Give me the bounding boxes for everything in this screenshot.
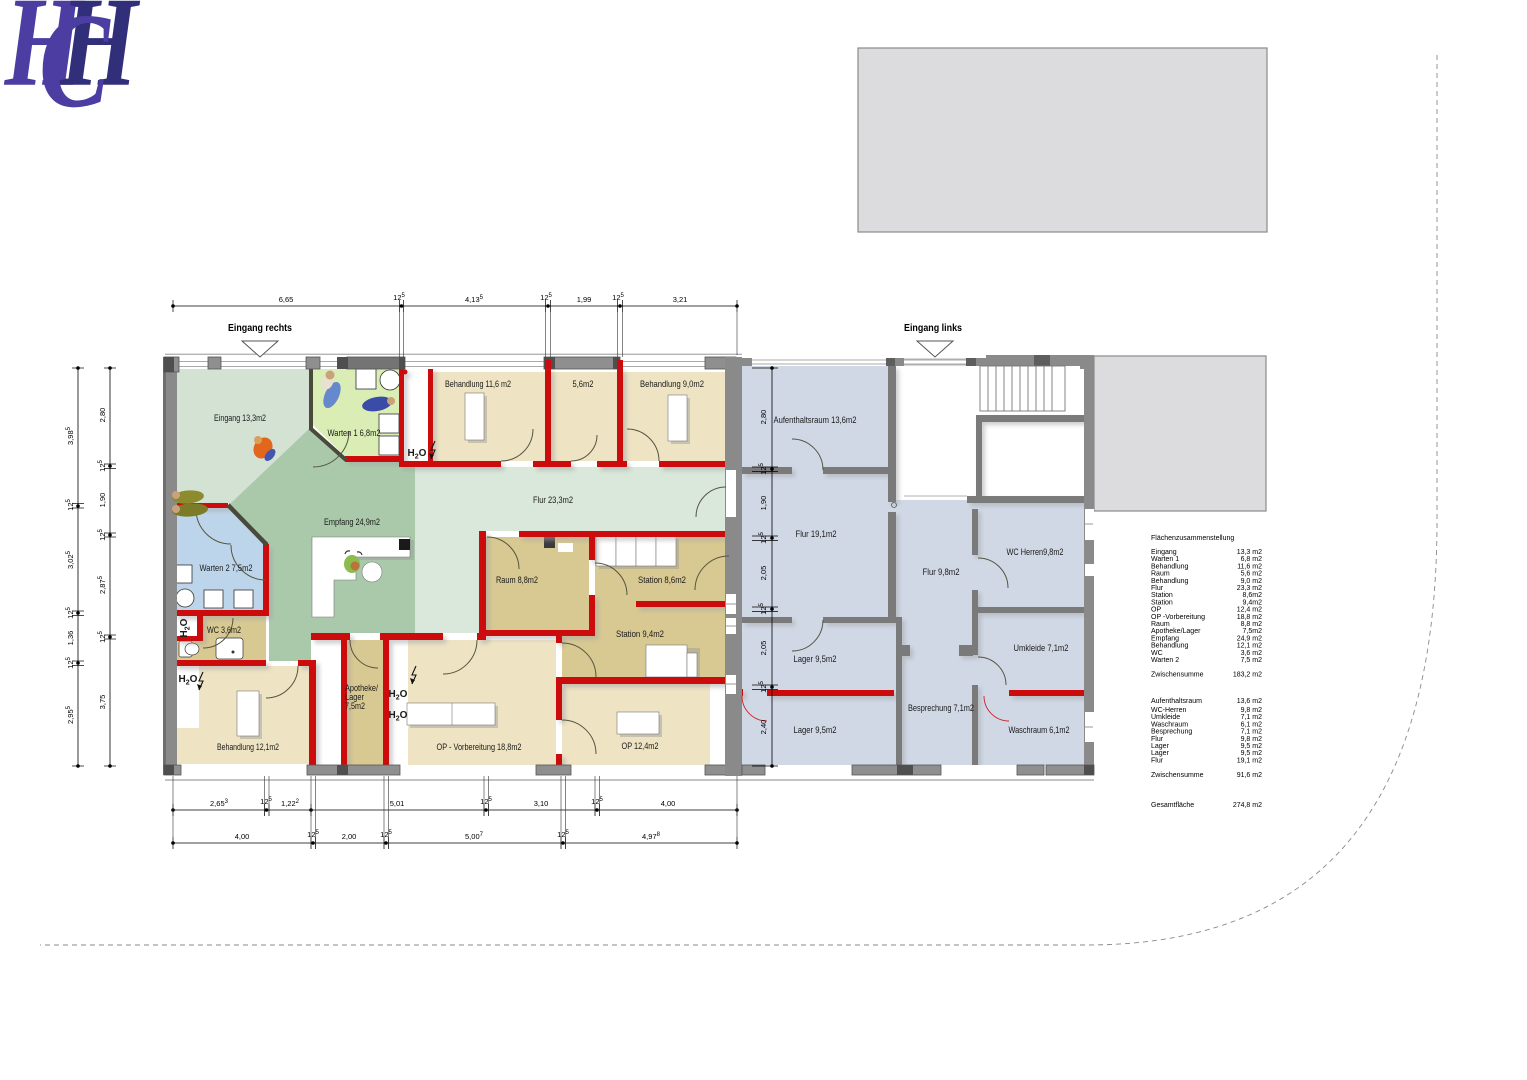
svg-text:8,6m2: 8,6m2 bbox=[1243, 592, 1263, 599]
svg-text:Behandlung 12,1m2: Behandlung 12,1m2 bbox=[217, 742, 279, 752]
svg-text:5,01: 5,01 bbox=[390, 799, 405, 808]
svg-text:91,6 m2: 91,6 m2 bbox=[1237, 772, 1262, 779]
svg-text:Apotheke/Lager: Apotheke/Lager bbox=[1151, 628, 1201, 635]
svg-text:7,1 m2: 7,1 m2 bbox=[1241, 729, 1263, 736]
svg-text:5,6 m2: 5,6 m2 bbox=[1241, 571, 1263, 578]
svg-text:7,5m2: 7,5m2 bbox=[345, 701, 365, 711]
svg-text:6,8 m2: 6,8 m2 bbox=[1241, 556, 1263, 563]
svg-text:Flächenzusammenstellung: Flächenzusammenstellung bbox=[1151, 535, 1234, 542]
svg-text:Flur 23,3m2: Flur 23,3m2 bbox=[533, 495, 573, 505]
svg-text:5,6m2: 5,6m2 bbox=[573, 379, 594, 389]
svg-text:7,1 m2: 7,1 m2 bbox=[1241, 714, 1263, 721]
svg-text:7,5m2: 7,5m2 bbox=[1243, 628, 1263, 635]
svg-text:9,8 m2: 9,8 m2 bbox=[1241, 707, 1263, 714]
svg-text:4,00: 4,00 bbox=[661, 799, 676, 808]
svg-text:Behandlung 9,0m2: Behandlung 9,0m2 bbox=[640, 379, 704, 389]
svg-text:13,6 m2: 13,6 m2 bbox=[1237, 698, 1262, 705]
svg-text:Behandlung 11,6 m2: Behandlung 11,6 m2 bbox=[445, 379, 511, 389]
svg-text:Gesamtfläche: Gesamtfläche bbox=[1151, 802, 1194, 809]
svg-text:Behandlung: Behandlung bbox=[1151, 563, 1188, 570]
svg-text:9,8 m2: 9,8 m2 bbox=[1241, 736, 1263, 743]
svg-text:3,10: 3,10 bbox=[534, 799, 549, 808]
svg-text:Umkleide 7,1m2: Umkleide 7,1m2 bbox=[1014, 643, 1069, 653]
svg-text:Umkleide: Umkleide bbox=[1151, 714, 1180, 721]
svg-text:Flur: Flur bbox=[1151, 736, 1164, 743]
svg-text:3,21: 3,21 bbox=[673, 295, 688, 304]
svg-text:Raum: Raum bbox=[1151, 621, 1170, 628]
svg-text:OP: OP bbox=[1151, 607, 1161, 614]
svg-text:12,1 m2: 12,1 m2 bbox=[1237, 643, 1262, 650]
svg-text:9,0 m2: 9,0 m2 bbox=[1241, 578, 1263, 585]
svg-text:2,80: 2,80 bbox=[759, 410, 768, 425]
svg-text:13,3 m2: 13,3 m2 bbox=[1237, 549, 1262, 556]
svg-text:183,2 m2: 183,2 m2 bbox=[1233, 672, 1262, 679]
svg-text:1,90: 1,90 bbox=[98, 493, 107, 508]
svg-text:Flur: Flur bbox=[1151, 757, 1164, 764]
svg-text:1,36: 1,36 bbox=[66, 631, 75, 646]
svg-text:Lager 9,5m2: Lager 9,5m2 bbox=[794, 725, 837, 735]
svg-text:Besprechung 7,1m2: Besprechung 7,1m2 bbox=[908, 703, 974, 713]
svg-text:2,00: 2,00 bbox=[342, 832, 357, 841]
svg-text:Warten 2: Warten 2 bbox=[1151, 657, 1179, 664]
svg-text:Waschraum: Waschraum bbox=[1151, 721, 1188, 728]
svg-text:18,8 m2: 18,8 m2 bbox=[1237, 614, 1262, 621]
svg-text:4,00: 4,00 bbox=[235, 832, 250, 841]
svg-text:9,5 m2: 9,5 m2 bbox=[1241, 743, 1263, 750]
svg-text:Warten 1 6,8m2: Warten 1 6,8m2 bbox=[328, 428, 381, 438]
svg-text:7,5 m2: 7,5 m2 bbox=[1241, 657, 1263, 664]
svg-text:C: C bbox=[39, 0, 111, 136]
svg-text:Empfang: Empfang bbox=[1151, 635, 1179, 642]
svg-text:Behandlung: Behandlung bbox=[1151, 578, 1188, 585]
svg-text:Station: Station bbox=[1151, 592, 1173, 599]
svg-text:19,1 m2: 19,1 m2 bbox=[1237, 757, 1262, 764]
svg-text:Waschraum 6,1m2: Waschraum 6,1m2 bbox=[1009, 725, 1070, 735]
svg-text:Behandlung: Behandlung bbox=[1151, 643, 1188, 650]
svg-text:Raum 8,8m2: Raum 8,8m2 bbox=[496, 575, 538, 585]
svg-text:Warten 1: Warten 1 bbox=[1151, 556, 1179, 563]
svg-text:OP -Vorbereitung: OP -Vorbereitung bbox=[1151, 614, 1205, 621]
svg-text:WC-Herren: WC-Herren bbox=[1151, 707, 1186, 714]
svg-text:2,05: 2,05 bbox=[759, 641, 768, 656]
svg-text:OP - Vorbereitung 18,8m2: OP - Vorbereitung 18,8m2 bbox=[437, 742, 522, 752]
svg-text:Aufenthaltsraum: Aufenthaltsraum bbox=[1151, 698, 1202, 705]
svg-text:274,8 m2: 274,8 m2 bbox=[1233, 802, 1262, 809]
svg-text:1,99: 1,99 bbox=[577, 295, 592, 304]
svg-text:OP 12,4m2: OP 12,4m2 bbox=[622, 741, 659, 751]
svg-text:Warten 2 7,5m2: Warten 2 7,5m2 bbox=[200, 563, 253, 573]
svg-text:Flur 9,8m2: Flur 9,8m2 bbox=[923, 567, 960, 577]
svg-text:Aufenthaltsraum 13,6m2: Aufenthaltsraum 13,6m2 bbox=[774, 415, 857, 425]
svg-text:3,75: 3,75 bbox=[98, 695, 107, 710]
svg-text:Lager 9,5m2: Lager 9,5m2 bbox=[794, 654, 837, 664]
svg-text:Zwischensumme: Zwischensumme bbox=[1151, 772, 1204, 779]
svg-text:WC: WC bbox=[1151, 650, 1163, 657]
svg-text:Station: Station bbox=[1151, 599, 1173, 606]
svg-text:WC 3,6m2: WC 3,6m2 bbox=[207, 625, 241, 635]
svg-text:Flur 19,1m2: Flur 19,1m2 bbox=[796, 529, 837, 539]
svg-text:8,8 m2: 8,8 m2 bbox=[1241, 621, 1263, 628]
svg-text:3,6 m2: 3,6 m2 bbox=[1241, 650, 1263, 657]
svg-text:2,80: 2,80 bbox=[98, 408, 107, 423]
svg-text:Eingang 13,3m2: Eingang 13,3m2 bbox=[214, 413, 266, 423]
svg-text:2,05: 2,05 bbox=[759, 566, 768, 581]
svg-text:24,9 m2: 24,9 m2 bbox=[1237, 635, 1262, 642]
svg-text:9,4m2: 9,4m2 bbox=[1243, 599, 1263, 606]
svg-text:1,90: 1,90 bbox=[759, 496, 768, 511]
svg-text:Station 9,4m2: Station 9,4m2 bbox=[616, 629, 664, 639]
svg-text:12,4 m2: 12,4 m2 bbox=[1237, 607, 1262, 614]
svg-text:Raum: Raum bbox=[1151, 571, 1170, 578]
svg-text:Eingang: Eingang bbox=[1151, 549, 1177, 556]
svg-text:WC Herren9,8m2: WC Herren9,8m2 bbox=[1007, 547, 1064, 557]
svg-text:Besprechung: Besprechung bbox=[1151, 729, 1192, 736]
svg-text:6,1 m2: 6,1 m2 bbox=[1241, 721, 1263, 728]
svg-text:6,65: 6,65 bbox=[279, 295, 294, 304]
svg-text:23,3 m2: 23,3 m2 bbox=[1237, 585, 1262, 592]
svg-text:2,40: 2,40 bbox=[759, 720, 768, 735]
svg-text:Station 8,6m2: Station 8,6m2 bbox=[638, 575, 686, 585]
svg-text:Empfang 24,9m2: Empfang 24,9m2 bbox=[324, 517, 380, 527]
svg-text:Zwischensumme: Zwischensumme bbox=[1151, 672, 1204, 679]
svg-text:Lager: Lager bbox=[1151, 743, 1170, 750]
svg-text:9,5 m2: 9,5 m2 bbox=[1241, 750, 1263, 757]
svg-text:Eingang rechts: Eingang rechts bbox=[228, 323, 292, 334]
svg-text:Lager: Lager bbox=[1151, 750, 1170, 757]
svg-text:Eingang links: Eingang links bbox=[904, 323, 962, 334]
svg-text:11,6 m2: 11,6 m2 bbox=[1237, 563, 1262, 570]
svg-text:Flur: Flur bbox=[1151, 585, 1164, 592]
